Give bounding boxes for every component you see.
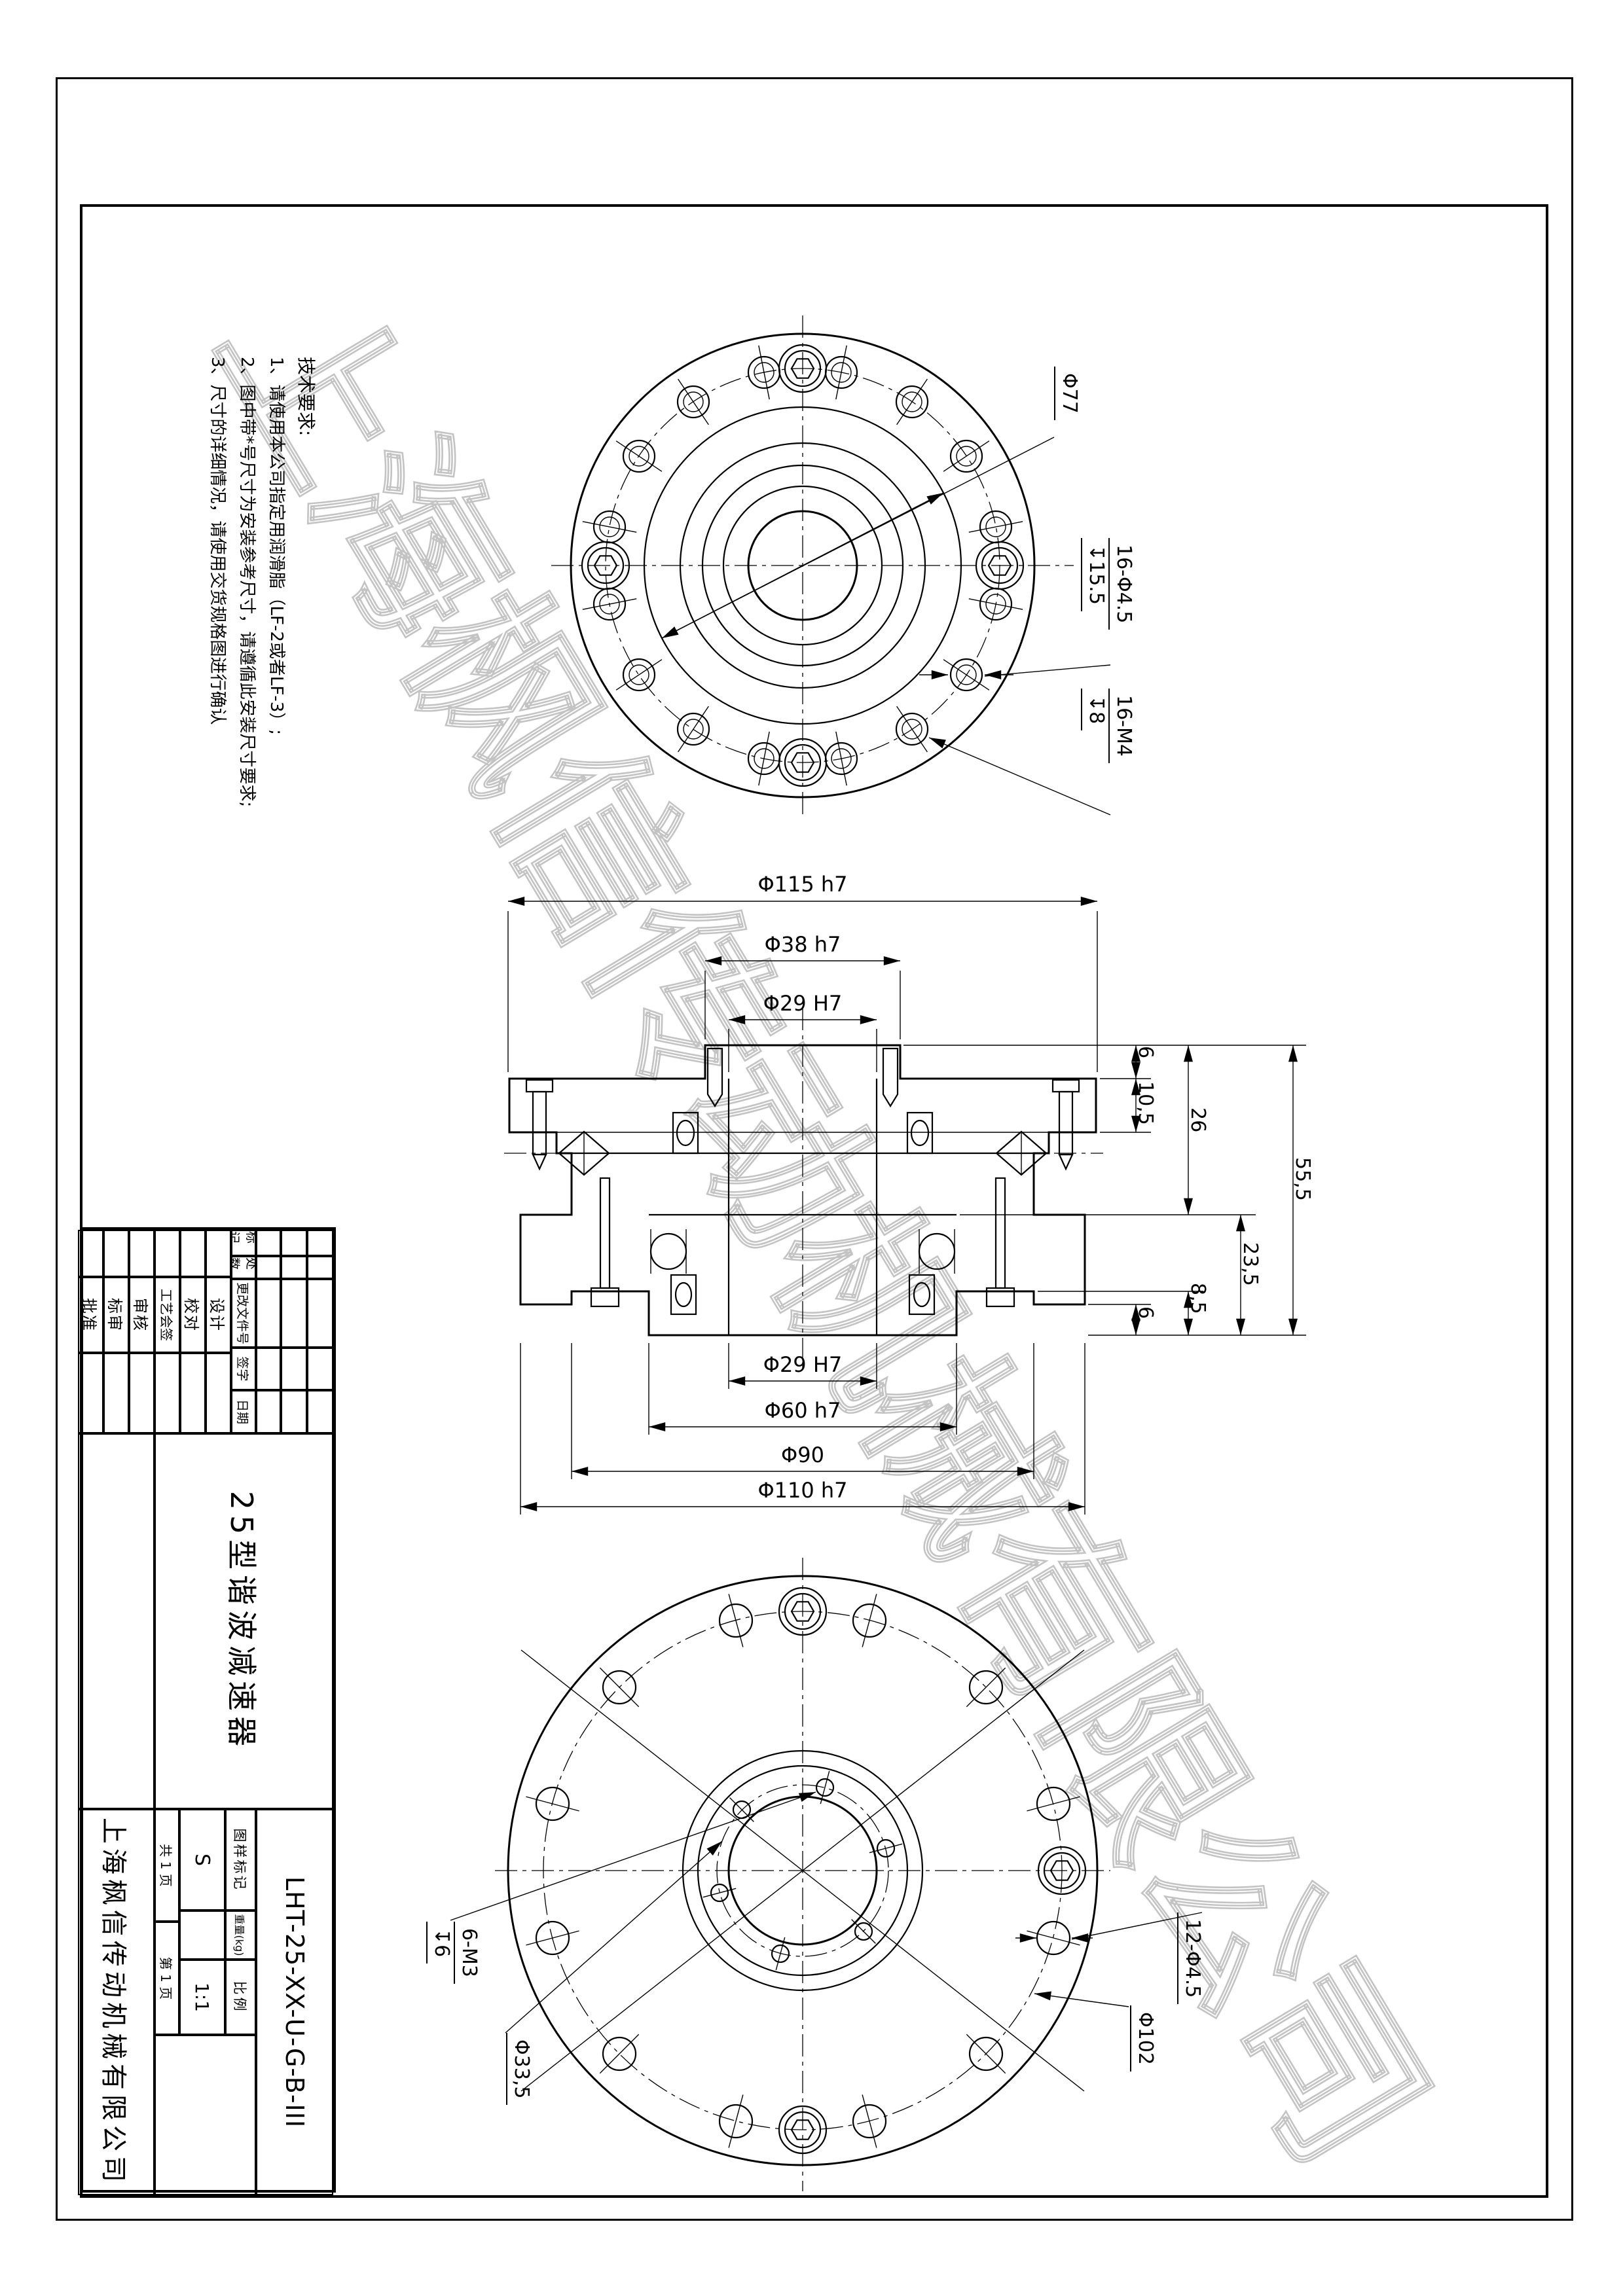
stamp-value: S <box>179 1809 225 1910</box>
rev-empty-cell <box>256 1256 281 1279</box>
stamp-label: 图样标记 <box>225 1809 256 1910</box>
rev-header-date: 日期 <box>231 1390 256 1433</box>
rev-empty-cell <box>307 1230 333 1256</box>
dim-phi29-bottom: Φ29 H7 <box>704 1352 901 1377</box>
page-number: 第 1 页 <box>155 1922 179 2035</box>
dim-8-5: 8,5 <box>1185 1283 1210 1314</box>
rev-empty-cell <box>281 1256 307 1279</box>
technical-notes: 技术要求: 1、请使用本公司指定用润滑脂（LF-2或者LF-3）; 2、图中带*… <box>196 357 321 867</box>
rev-header-sign: 签字 <box>231 1348 256 1390</box>
dim-23-5: 23,5 <box>1237 1242 1262 1286</box>
title-block: 标记 处数 更改文件号 签字 日期 设计 校对 工艺会签 审核 标审 批准 <box>81 1227 336 2193</box>
sig-empty-cell <box>129 1353 155 1433</box>
rev-empty-cell <box>281 1348 307 1390</box>
note-line-3: 3、尺寸的详细情况，请使用交货规格图进行确认 <box>202 357 232 867</box>
rev-empty-cell <box>307 1390 333 1433</box>
rev-empty-cell <box>281 1230 307 1256</box>
dim-16-phi45-depth: ↧15.5 <box>1081 538 1108 611</box>
dim-6-bottom: 6 <box>1133 1306 1158 1319</box>
notes-title: 技术要求: <box>291 357 321 867</box>
revision-table: 标记 处数 更改文件号 签字 日期 <box>231 1230 333 1433</box>
rev-empty-cell <box>281 1279 307 1348</box>
rev-empty-cell <box>307 1348 333 1390</box>
sig-label-design: 设计 <box>206 1277 231 1353</box>
sig-empty-cell <box>129 1230 155 1277</box>
company-name: 上海枫信传动机械有限公司 <box>78 1809 155 2195</box>
sig-empty-cell <box>206 1353 231 1433</box>
dim-6-m3-line1: 6-M3 <box>454 1922 481 1984</box>
dim-6-m3: 6-M3 ↧6 <box>426 1922 481 1984</box>
dim-55-5: 55,5 <box>1290 1157 1315 1201</box>
sig-empty-cell <box>155 1353 180 1433</box>
dim-phi115: Φ115 h7 <box>704 872 901 897</box>
dim-16-m4-depth: ↧8 <box>1081 689 1108 730</box>
rev-empty-cell <box>256 1230 281 1256</box>
weight-label: 重量(kg) <box>225 1910 256 1960</box>
dim-phi110: Φ110 h7 <box>704 1478 901 1503</box>
rev-empty-cell <box>256 1348 281 1390</box>
dim-12-phi45-text: 12-Φ4.5 <box>1177 1912 1205 2004</box>
dim-12-phi45: 12-Φ4.5 <box>1177 1912 1205 2004</box>
dim-16-m4: 16-M4 ↧8 <box>1081 689 1136 763</box>
dim-phi29-top: Φ29 H7 <box>704 991 901 1016</box>
dim-phi90: Φ90 <box>704 1443 901 1467</box>
sig-empty-cell <box>206 1230 231 1277</box>
sig-empty-cell <box>78 1353 103 1433</box>
dim-6-top: 6 <box>1133 1046 1158 1058</box>
dim-16-m4-line1: 16-M4 <box>1108 689 1136 763</box>
dim-phi77-text: Φ77 <box>1054 367 1082 420</box>
dim-26: 26 <box>1185 1107 1210 1132</box>
sig-label-approve: 批准 <box>78 1277 103 1353</box>
title-block-empty-cell <box>78 1433 155 1809</box>
sig-empty-cell <box>155 1230 180 1277</box>
note-line-2: 2、图中带*号尺寸为安装参考尺寸，请遵循此安装尺寸要求; <box>232 357 261 867</box>
dim-phi60: Φ60 h7 <box>704 1398 901 1423</box>
rev-header-count: 处数 <box>231 1256 256 1279</box>
weight-value <box>179 1910 225 1960</box>
dim-phi33-5-text: Φ33,5 <box>506 2033 534 2105</box>
dim-phi102: Φ102 <box>1130 2005 1158 2072</box>
rev-header-docno: 更改文件号 <box>231 1279 256 1348</box>
rev-empty-cell <box>281 1390 307 1433</box>
sig-label-check: 审核 <box>129 1277 155 1353</box>
part-name: 25型谐波减速器 <box>155 1433 333 1809</box>
dim-6-m3-depth: ↧6 <box>426 1922 454 1964</box>
total-pages: 共 1 页 <box>155 1809 179 1922</box>
note-line-1: 1、请使用本公司指定用润滑脂（LF-2或者LF-3）; <box>261 357 291 867</box>
sig-label-standard: 标审 <box>103 1277 129 1353</box>
sig-empty-cell <box>180 1353 206 1433</box>
dim-phi77: Φ77 <box>1054 367 1082 420</box>
sig-empty-cell <box>78 1230 103 1277</box>
rev-empty-cell <box>256 1279 281 1348</box>
signature-table: 设计 校对 工艺会签 审核 标审 批准 <box>78 1230 231 1433</box>
top-view <box>551 315 1110 819</box>
dim-phi102-text: Φ102 <box>1130 2005 1158 2072</box>
scale-value: 1:1 <box>179 1960 225 2035</box>
sig-empty-cell <box>180 1230 206 1277</box>
dim-10-5: 10,5 <box>1133 1081 1158 1125</box>
scale-label: 比例 <box>225 1960 256 2035</box>
part-number: LHT-25-XX-U-G-B-III <box>256 1809 333 2195</box>
bottom-view <box>450 1558 1202 2191</box>
rev-empty-cell <box>307 1279 333 1348</box>
title-block-empty-cell <box>155 2035 256 2195</box>
rev-header-mark: 标记 <box>231 1230 256 1256</box>
sig-label-proof: 校对 <box>180 1277 206 1353</box>
dim-phi33-5: Φ33,5 <box>506 2033 534 2105</box>
section-view <box>504 901 1306 1515</box>
sig-label-process: 工艺会签 <box>155 1277 180 1353</box>
sig-empty-cell <box>103 1353 129 1433</box>
dim-16-phi45-line1: 16-Φ4.5 <box>1108 538 1136 630</box>
drawing-sheet: { "drawing": { "watermark": "上海枫信传动机械有限公… <box>0 0 1623 2296</box>
dim-phi38: Φ38 h7 <box>704 932 901 957</box>
sig-empty-cell <box>103 1230 129 1277</box>
rev-empty-cell <box>307 1256 333 1279</box>
dim-16-phi45: 16-Φ4.5 ↧15.5 <box>1081 538 1136 630</box>
rev-empty-cell <box>256 1390 281 1433</box>
